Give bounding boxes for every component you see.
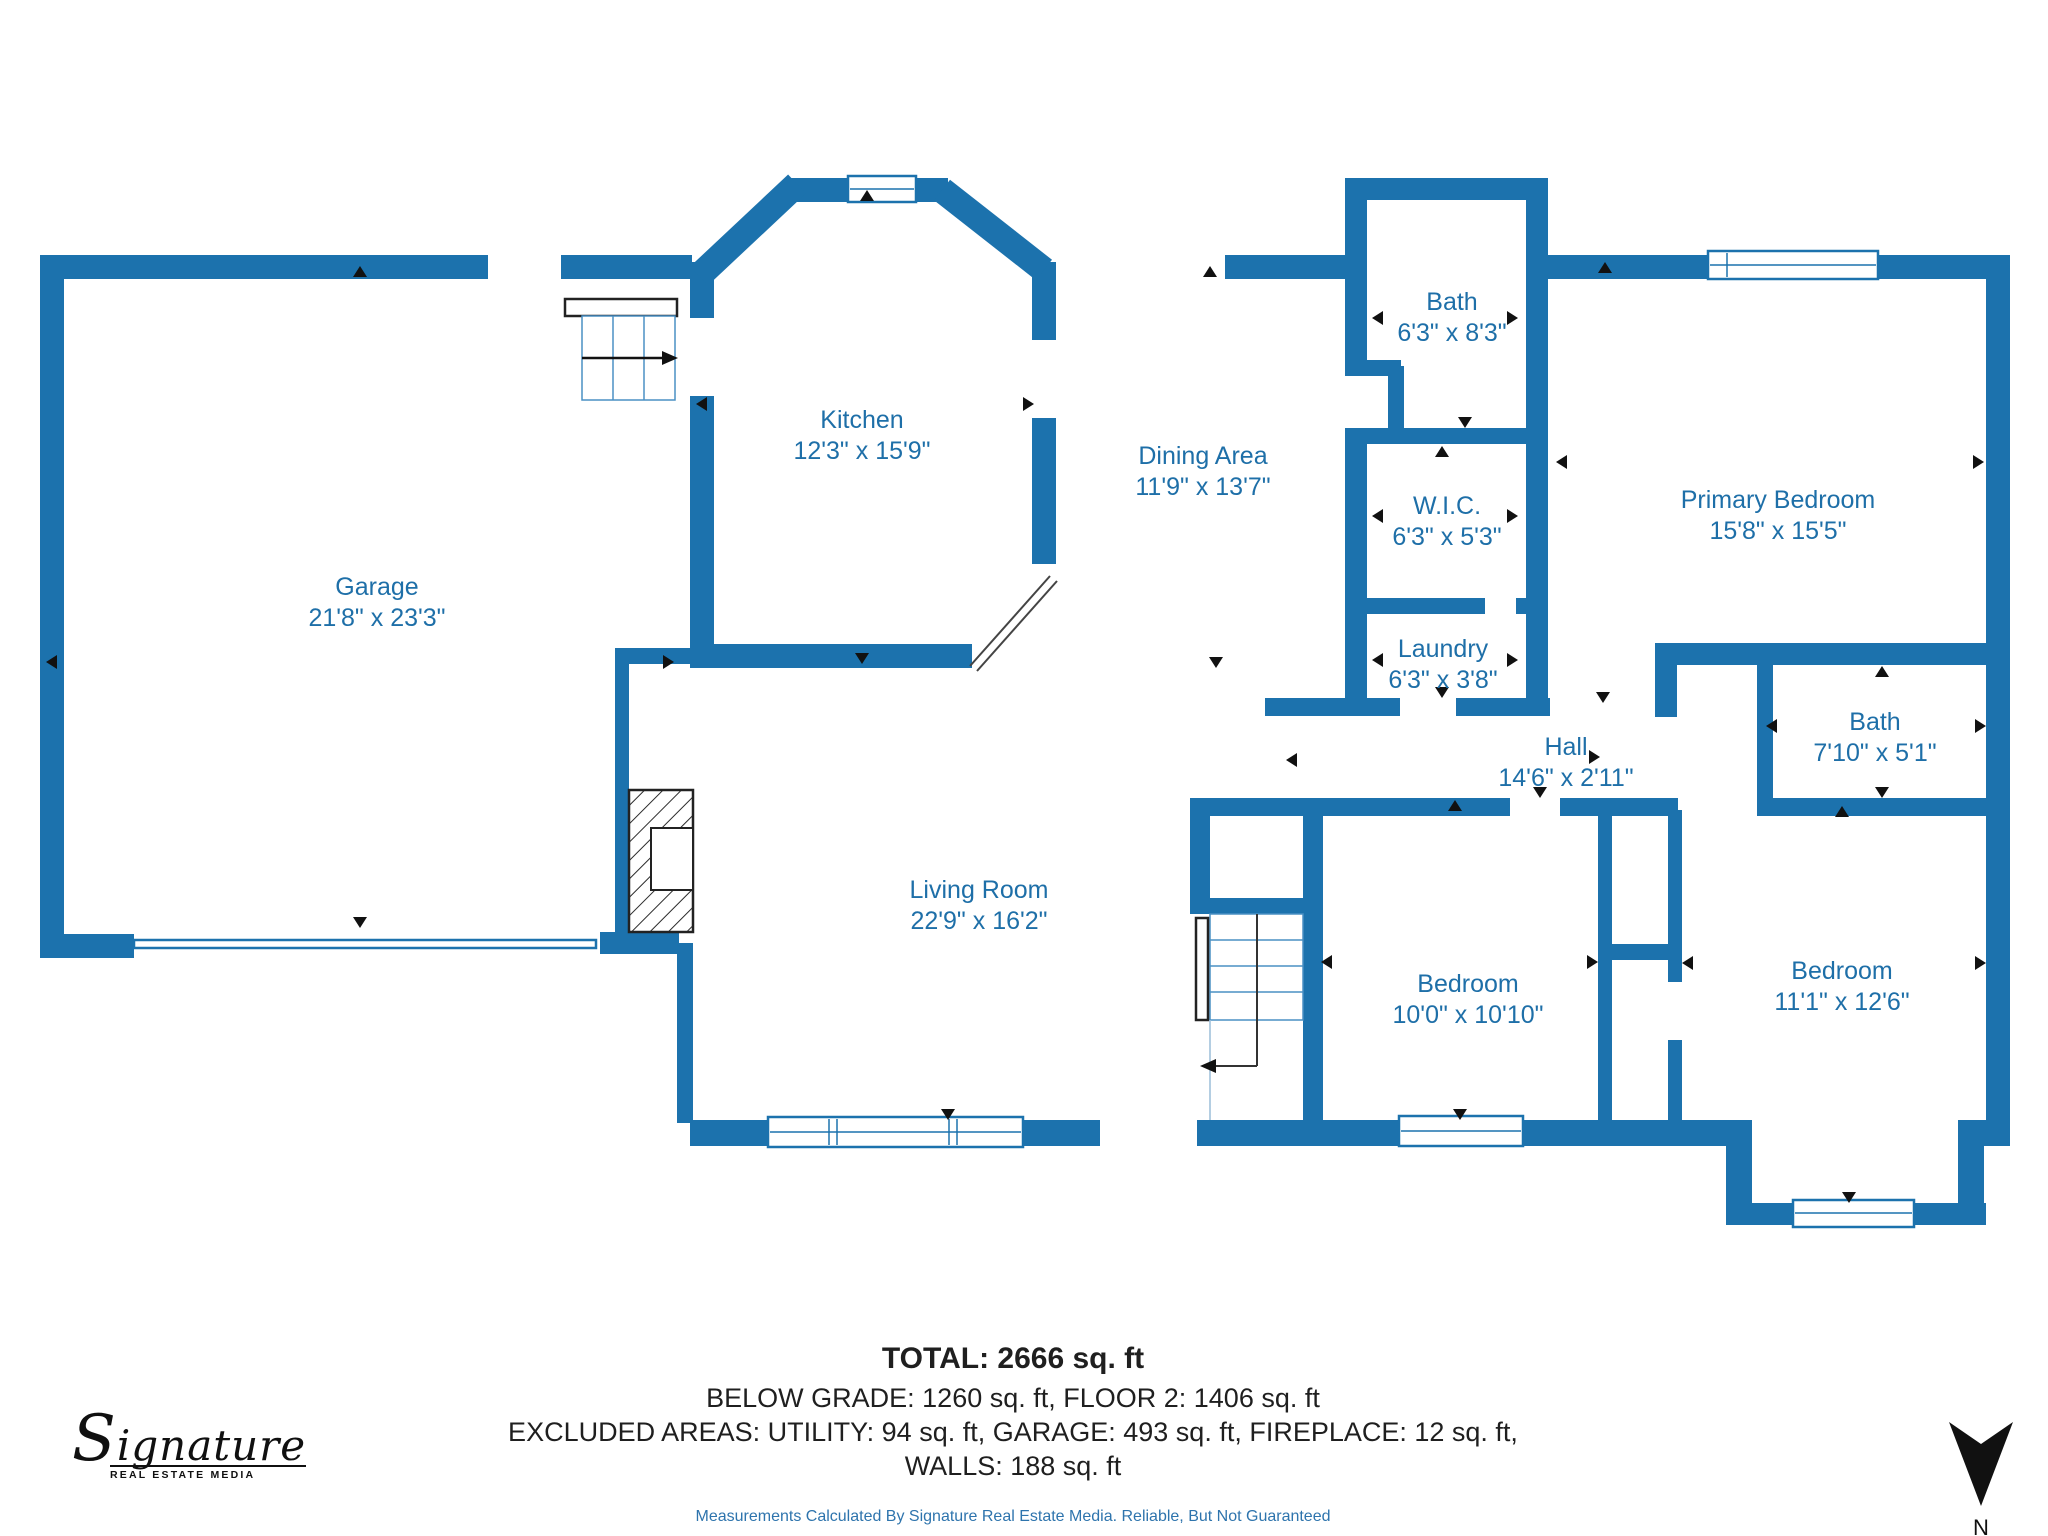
logo-wordmark: Signature — [72, 1418, 306, 1467]
room-dims: 22'9" x 16'2" — [910, 906, 1049, 937]
room-name: Kitchen — [820, 406, 903, 434]
room-label-bath-upper: Bath 6'3" x 8'3" — [1397, 287, 1506, 349]
room-label-dining-area: Dining Area 11'9" x 13'7" — [1135, 441, 1270, 503]
room-name: Bath — [1849, 708, 1900, 736]
room-dims: 11'1" x 12'6" — [1774, 987, 1909, 1018]
room-dims: 6'3" x 8'3" — [1397, 318, 1506, 349]
stairs-main — [1196, 914, 1303, 1120]
compass-north-icon: N — [1948, 1420, 2014, 1536]
total-area-text: TOTAL: 2666 sq. ft — [508, 1342, 1518, 1376]
room-dims: 6'3" x 3'8" — [1388, 665, 1497, 696]
area-summary: TOTAL: 2666 sq. ft BELOW GRADE: 1260 sq.… — [508, 1342, 1518, 1526]
room-label-living-room: Living Room 22'9" x 16'2" — [910, 875, 1049, 937]
room-name: Living Room — [910, 876, 1049, 904]
below-grade-text: BELOW GRADE: 1260 sq. ft, FLOOR 2: 1406 … — [508, 1383, 1518, 1414]
stairs-upper — [565, 299, 678, 400]
room-name: Hall — [1544, 733, 1587, 761]
room-dims: 7'10" x 5'1" — [1813, 738, 1936, 769]
room-label-bedroom-1: Bedroom 10'0" x 10'10" — [1392, 969, 1543, 1031]
fireplace-icon — [629, 790, 693, 932]
room-name: Dining Area — [1138, 442, 1267, 470]
floor-plan-drawing — [0, 0, 2048, 1536]
room-name: Bedroom — [1417, 970, 1518, 998]
room-label-laundry: Laundry 6'3" x 3'8" — [1388, 634, 1497, 696]
kitchen-corner-door — [970, 576, 1057, 671]
windows — [134, 176, 1914, 1227]
room-label-primary-bedroom: Primary Bedroom 15'8" x 15'5" — [1681, 485, 1876, 547]
room-dims: 14'6" x 2'11" — [1498, 763, 1633, 794]
room-label-bath-hall: Bath 7'10" x 5'1" — [1813, 707, 1936, 769]
room-label-wic: W.I.C. 6'3" x 5'3" — [1392, 491, 1501, 553]
room-dims: 21'8" x 23'3" — [308, 603, 445, 634]
room-label-hall: Hall 14'6" x 2'11" — [1498, 732, 1633, 794]
walls — [40, 178, 2010, 1225]
room-label-kitchen: Kitchen 12'3" x 15'9" — [793, 405, 930, 467]
garage-door — [134, 940, 596, 948]
room-name: Garage — [335, 573, 418, 601]
room-name: Bedroom — [1791, 957, 1892, 985]
room-name: Primary Bedroom — [1681, 486, 1876, 514]
room-name: Laundry — [1398, 635, 1488, 663]
room-name: Bath — [1426, 288, 1477, 316]
measurement-arrows — [46, 190, 1986, 1203]
signature-logo: Signature REAL ESTATE MEDIA — [72, 1418, 306, 1481]
room-dims: 6'3" x 5'3" — [1392, 522, 1501, 553]
floor-plan-page: Garage 21'8" x 23'3" Kitchen 12'3" x 15'… — [0, 0, 2048, 1536]
room-label-garage: Garage 21'8" x 23'3" — [308, 572, 445, 634]
disclaimer-text: Measurements Calculated By Signature Rea… — [508, 1508, 1518, 1526]
north-arrow — [1948, 1420, 2014, 1508]
room-dims: 10'0" x 10'10" — [1392, 1000, 1543, 1031]
compass-label: N — [1948, 1515, 2014, 1536]
room-name: W.I.C. — [1413, 492, 1481, 520]
excluded-areas-text: EXCLUDED AREAS: UTILITY: 94 sq. ft, GARA… — [508, 1417, 1518, 1448]
room-dims: 11'9" x 13'7" — [1135, 472, 1270, 503]
room-dims: 15'8" x 15'5" — [1681, 516, 1876, 547]
room-dims: 12'3" x 15'9" — [793, 436, 930, 467]
walls-area-text: WALLS: 188 sq. ft — [508, 1451, 1518, 1482]
room-label-bedroom-2: Bedroom 11'1" x 12'6" — [1774, 956, 1909, 1018]
